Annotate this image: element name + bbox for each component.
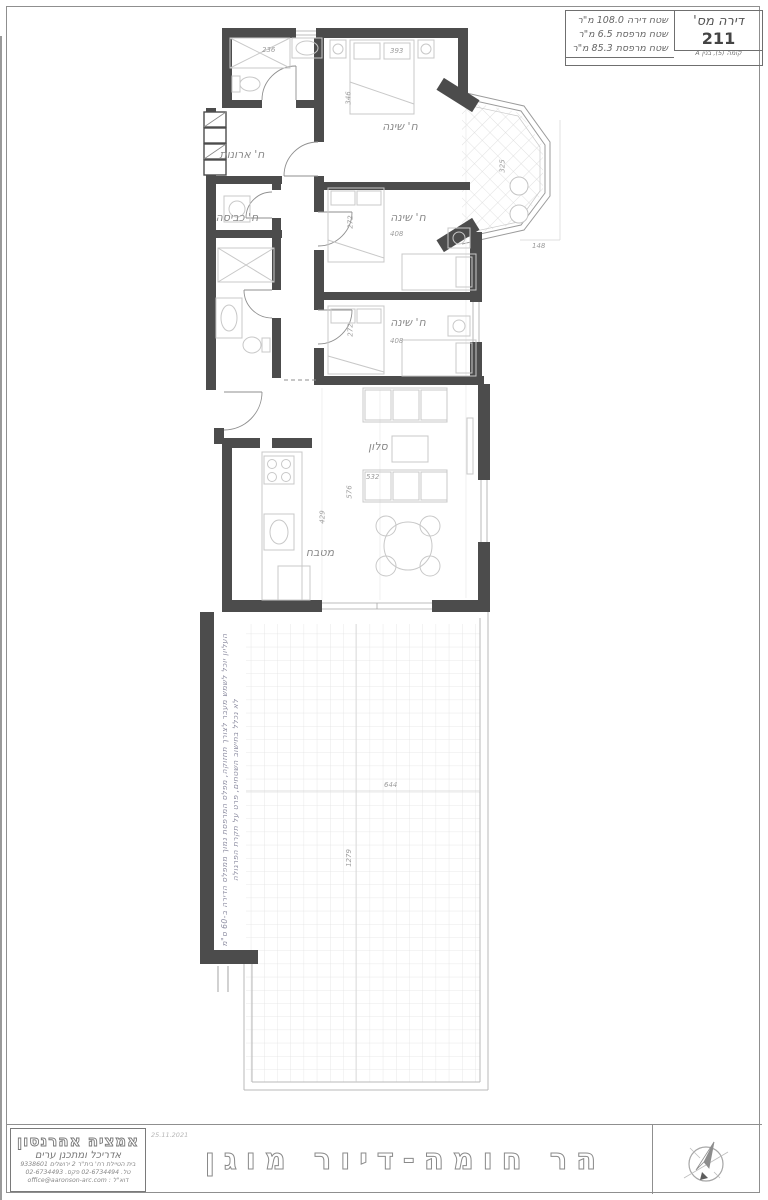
room-label-bedroom1: ח' שינה bbox=[370, 120, 430, 133]
apartment-number-cell: דירה מס' 211 קומה (5), בנין A bbox=[674, 11, 762, 51]
apartment-number-label: דירה מס' bbox=[693, 14, 744, 29]
terrace-note-line2: לא נכלל בחישוב השטחים, פרט על תקרת הפרגו… bbox=[230, 615, 241, 965]
room-label-living: סלון bbox=[352, 440, 404, 453]
dim-bed1-width: 393 bbox=[390, 47, 403, 55]
architect-address: בית הטיילת רח' בית"ר 2 ירושלים 9338601 bbox=[11, 1161, 145, 1169]
dim-kitchen-depth: 429 bbox=[319, 510, 327, 523]
architect-phone: טל. 02-6734494 פקס. 02-6734493 bbox=[11, 1169, 145, 1177]
room-label-closets: ח' ארונות bbox=[210, 148, 274, 161]
architect-name: אמציה אהרנסון bbox=[11, 1132, 145, 1150]
north-arrow-icon bbox=[676, 1134, 736, 1194]
architect-email: דוא"ל : office@aaronson-arc.com bbox=[11, 1177, 145, 1185]
dim-shower: 236 bbox=[262, 46, 275, 54]
area-line-3: שטח מרפסת 85.3 מ"ר bbox=[566, 42, 668, 56]
dim-living-depth: 576 bbox=[346, 485, 354, 498]
dim-bed2-width: 408 bbox=[390, 230, 403, 238]
dim-terrace-length: 1279 bbox=[345, 849, 353, 867]
apartment-number: 211 bbox=[702, 29, 735, 48]
footer-separator bbox=[6, 1124, 762, 1125]
dim-terrace-width: 644 bbox=[384, 781, 397, 789]
closet-niche bbox=[204, 112, 226, 175]
room-label-kitchen: מטבח bbox=[295, 546, 345, 559]
title-block: דירה מס' 211 קומה (5), בנין A שטח דירה 1… bbox=[565, 10, 763, 66]
architect-role: אדריכל ומתכנן ערים bbox=[11, 1150, 145, 1161]
dim-bed3-width: 408 bbox=[390, 337, 403, 345]
compass-box-divider bbox=[652, 1124, 653, 1194]
terrace-wall-detail bbox=[218, 966, 228, 992]
floor-line: קומה (5), בנין A bbox=[675, 49, 762, 57]
areas-cell: שטח דירה 108.0 מ"ר שטח מרפסת 6.5 מ"ר שטח… bbox=[566, 11, 674, 58]
bay-balcony bbox=[462, 92, 560, 244]
plan-date: 25.11.2021 bbox=[151, 1131, 188, 1139]
dim-bed2-depth: 272 bbox=[347, 215, 355, 228]
dim-living-width: 532 bbox=[366, 473, 379, 481]
room-label-laundry: ח' כביסה bbox=[206, 211, 268, 224]
terrace-tiles bbox=[246, 624, 480, 1082]
area-line-2: שטח מרפסת 6.5 מ"ר bbox=[566, 28, 668, 42]
dim-bay-width: 325 bbox=[499, 159, 507, 172]
terrace-note-line1: העליון יוכל לשמש מעבר לצורך תחזוקה, מפלס… bbox=[219, 615, 230, 965]
room-label-bedroom2: ח' שינה bbox=[378, 211, 438, 224]
dim-bed1-depth: 346 bbox=[345, 91, 353, 104]
floor-plan bbox=[0, 0, 768, 1200]
room-label-bedroom3: ח' שינה bbox=[378, 316, 438, 329]
drawing-sheet: דירה מס' 211 קומה (5), בנין A שטח דירה 1… bbox=[0, 0, 768, 1200]
dim-bed3-depth: 272 bbox=[347, 323, 355, 336]
dim-bay-depth: 148 bbox=[532, 242, 545, 250]
project-title: הר חומה-דיור מוגן bbox=[170, 1142, 640, 1176]
terrace-note: העליון יוכל לשמש מעבר לצורך תחזוקה, מפלס… bbox=[219, 615, 241, 965]
area-line-1: שטח דירה 108.0 מ"ר bbox=[566, 14, 668, 28]
architect-stamp: אמציה אהרנסון אדריכל ומתכנן ערים בית הטי… bbox=[10, 1128, 146, 1192]
